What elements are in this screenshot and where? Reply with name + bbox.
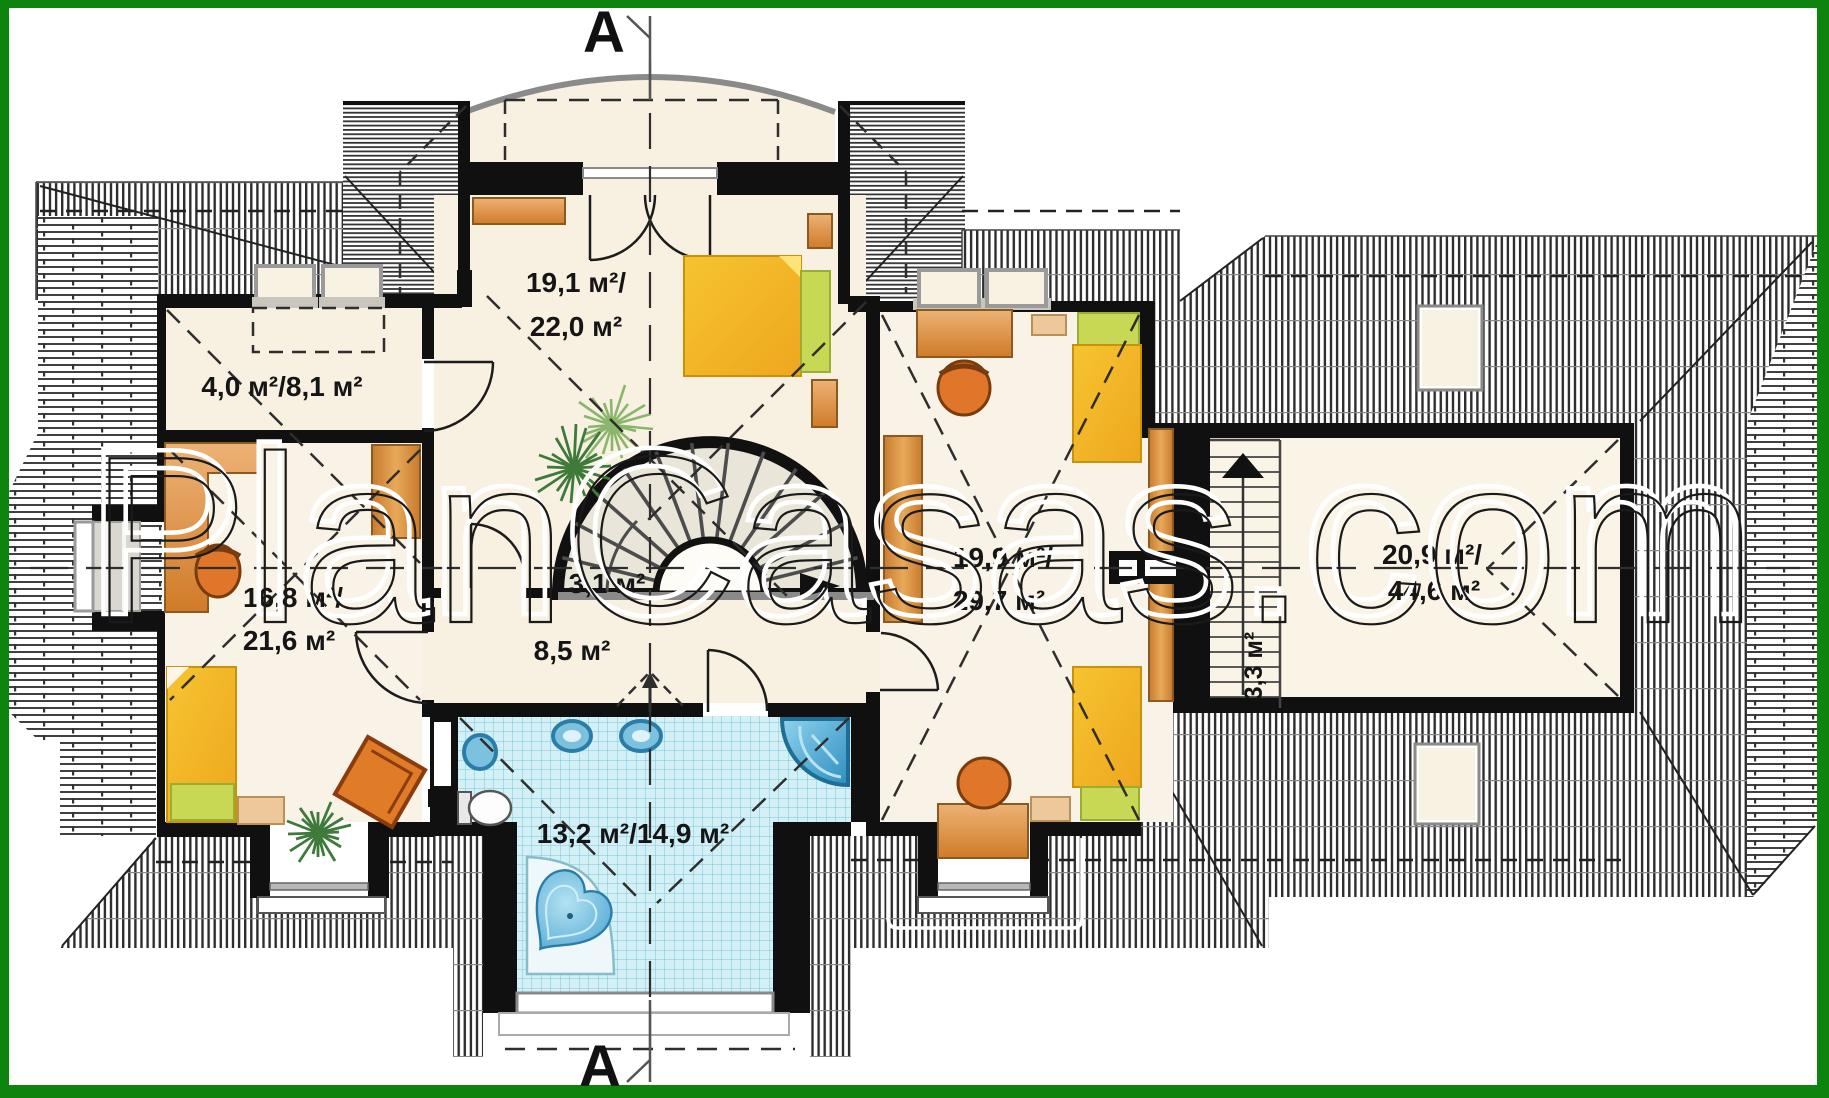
- svg-text:4,0 м²/8,1 м²: 4,0 м²/8,1 м²: [201, 371, 362, 402]
- svg-text:22,0 м²: 22,0 м²: [530, 311, 622, 342]
- svg-text:A: A: [579, 1034, 621, 1098]
- svg-text:19,1 м²/: 19,1 м²/: [526, 267, 626, 298]
- svg-text:13,2 м²/14,9 м²: 13,2 м²/14,9 м²: [537, 818, 729, 849]
- svg-text:A: A: [583, 0, 625, 65]
- svg-text:PlanCasas.com: PlanCasas.com: [90, 408, 1757, 673]
